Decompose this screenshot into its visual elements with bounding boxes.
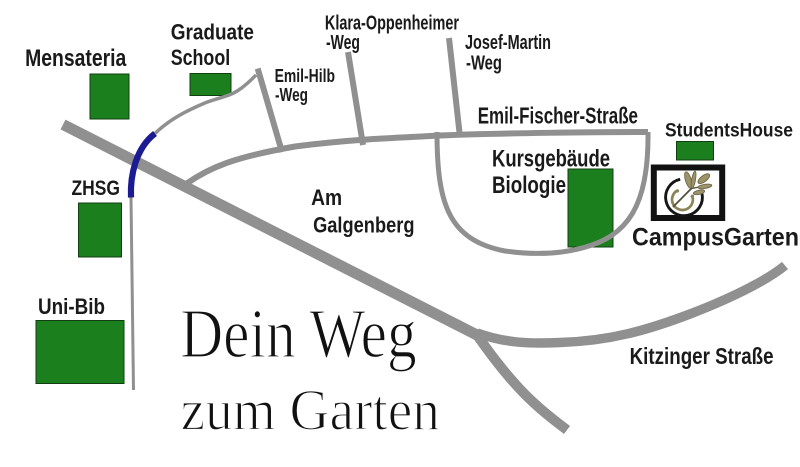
svg-text:zum Garten: zum Garten	[181, 378, 440, 443]
svg-text:Kitzinger Straße: Kitzinger Straße	[630, 343, 774, 369]
svg-text:Mensateria: Mensateria	[25, 45, 127, 72]
svg-text:Emil-Hilb: Emil-Hilb	[275, 66, 335, 86]
svg-text:-Weg: -Weg	[466, 53, 502, 75]
svg-text:Josef-Martin: Josef-Martin	[465, 32, 551, 54]
svg-text:School: School	[171, 45, 231, 70]
svg-text:CampusGarten: CampusGarten	[632, 224, 799, 252]
svg-text:Graduate: Graduate	[171, 19, 254, 44]
svg-text:Uni-Bib: Uni-Bib	[38, 294, 105, 319]
svg-text:Emil-Fischer-Straße: Emil-Fischer-Straße	[478, 103, 638, 129]
svg-text:ZHSG: ZHSG	[72, 176, 121, 200]
svg-text:-Weg: -Weg	[326, 32, 360, 54]
svg-text:Kursgebäude: Kursgebäude	[492, 145, 610, 172]
svg-text:Galgenberg: Galgenberg	[313, 213, 414, 238]
svg-text:-Weg: -Weg	[275, 85, 308, 105]
svg-text:Am: Am	[311, 185, 342, 210]
svg-text:Biologie: Biologie	[492, 172, 566, 199]
svg-text:Dein Weg: Dein Weg	[180, 296, 416, 373]
svg-text:StudentsHouse: StudentsHouse	[665, 120, 793, 142]
